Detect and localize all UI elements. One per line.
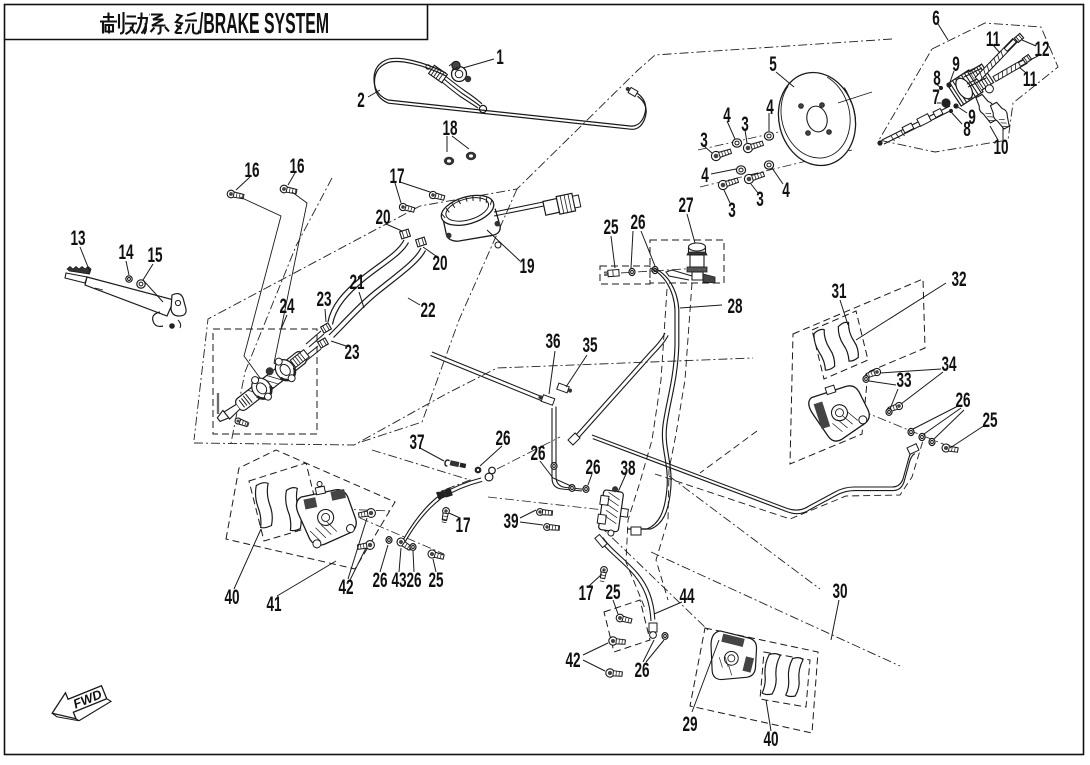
- svg-text:10: 10: [993, 135, 1008, 159]
- svg-text:4: 4: [701, 163, 709, 187]
- svg-text:17: 17: [578, 581, 593, 605]
- svg-text:9: 9: [952, 52, 960, 76]
- svg-text:23: 23: [316, 287, 331, 311]
- svg-text:5: 5: [769, 52, 777, 76]
- svg-text:11: 11: [1023, 67, 1037, 91]
- svg-text:32: 32: [951, 267, 966, 291]
- svg-text:26: 26: [530, 441, 545, 465]
- svg-text:41: 41: [266, 592, 281, 616]
- svg-text:21: 21: [349, 270, 364, 294]
- svg-text:17: 17: [455, 513, 470, 537]
- svg-text:11: 11: [986, 27, 1000, 51]
- svg-text:19: 19: [519, 254, 534, 278]
- svg-text:26: 26: [372, 568, 387, 592]
- svg-text:27: 27: [678, 193, 693, 217]
- svg-text:1: 1: [496, 45, 504, 69]
- svg-text:4: 4: [782, 178, 790, 202]
- svg-text:4: 4: [723, 103, 731, 127]
- svg-text:17: 17: [389, 164, 404, 188]
- svg-text:43: 43: [391, 568, 406, 592]
- svg-text:3: 3: [728, 198, 736, 222]
- svg-text:18: 18: [442, 116, 457, 140]
- svg-text:23: 23: [344, 340, 359, 364]
- svg-text:26: 26: [955, 388, 970, 412]
- svg-text:38: 38: [620, 456, 635, 480]
- svg-text:25: 25: [605, 580, 620, 604]
- svg-text:3: 3: [741, 112, 749, 136]
- svg-text:42: 42: [565, 648, 580, 672]
- svg-text:37: 37: [409, 430, 424, 454]
- svg-text:26: 26: [585, 455, 600, 479]
- svg-text:40: 40: [763, 727, 778, 751]
- svg-text:26: 26: [406, 568, 421, 592]
- svg-text:7: 7: [932, 85, 940, 109]
- svg-text:13: 13: [70, 226, 85, 250]
- svg-text:28: 28: [727, 294, 742, 318]
- svg-text:3: 3: [756, 187, 764, 211]
- svg-text:20: 20: [375, 205, 390, 229]
- svg-text:26: 26: [495, 426, 510, 450]
- svg-text:3: 3: [700, 128, 708, 152]
- svg-text:22: 22: [420, 298, 435, 322]
- svg-text:6: 6: [932, 6, 940, 30]
- svg-text:8: 8: [963, 117, 971, 141]
- svg-text:12: 12: [1034, 37, 1049, 61]
- svg-text:25: 25: [982, 408, 997, 432]
- svg-text:25: 25: [428, 568, 443, 592]
- svg-text:20: 20: [432, 251, 447, 275]
- svg-text:26: 26: [630, 210, 645, 234]
- svg-text:/BRAKE SYSTEM: /BRAKE SYSTEM: [199, 8, 329, 40]
- svg-text:40: 40: [224, 585, 239, 609]
- svg-text:15: 15: [147, 243, 162, 267]
- svg-text:16: 16: [289, 154, 304, 178]
- svg-text:33: 33: [896, 368, 911, 392]
- svg-text:30: 30: [832, 579, 847, 603]
- svg-text:25: 25: [603, 215, 618, 239]
- svg-text:16: 16: [244, 158, 259, 182]
- svg-text:34: 34: [941, 352, 956, 376]
- svg-text:24: 24: [279, 294, 294, 318]
- svg-text:36: 36: [545, 329, 560, 353]
- svg-text:39: 39: [503, 509, 518, 533]
- svg-text:44: 44: [679, 584, 694, 608]
- svg-text:14: 14: [118, 240, 133, 264]
- svg-text:42: 42: [338, 575, 353, 599]
- svg-text:4: 4: [766, 95, 774, 119]
- svg-text:31: 31: [831, 279, 846, 303]
- svg-text:2: 2: [357, 88, 365, 112]
- svg-text:26: 26: [634, 658, 649, 682]
- svg-text:29: 29: [682, 712, 697, 736]
- svg-text:35: 35: [582, 333, 597, 357]
